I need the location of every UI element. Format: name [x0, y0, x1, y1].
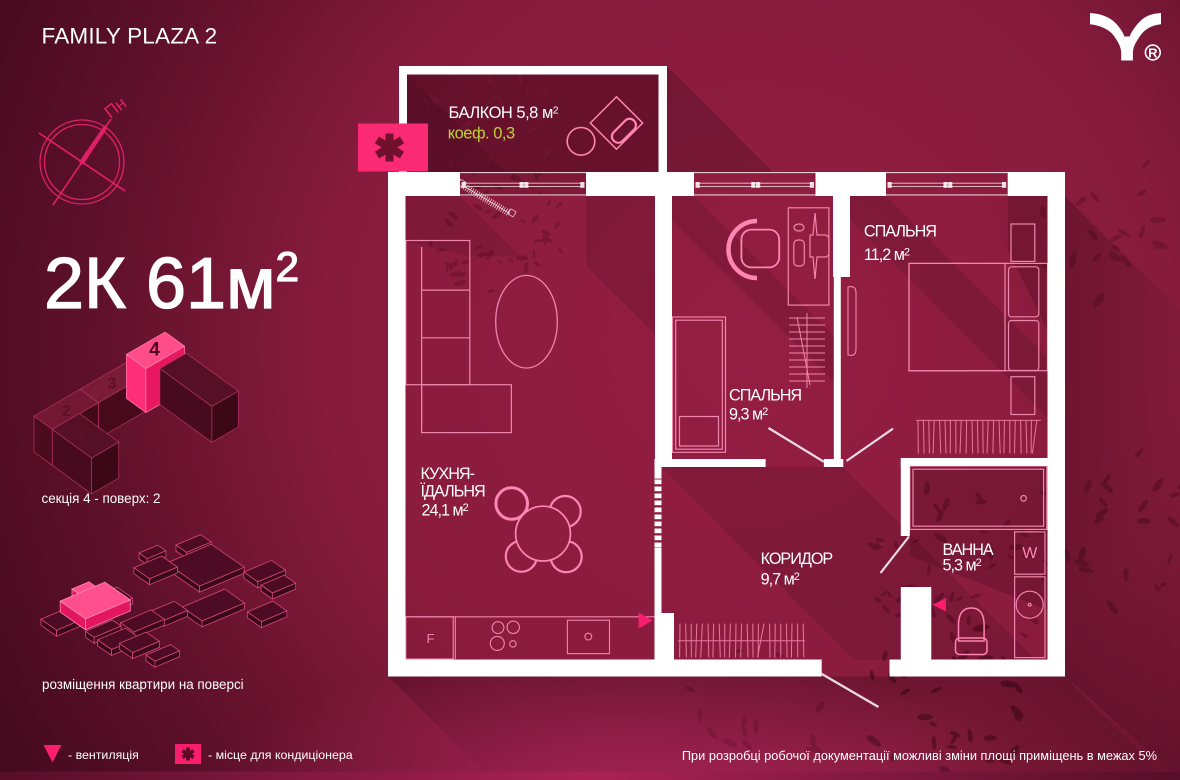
svg-text:W: W: [1022, 545, 1038, 562]
svg-text:При розробці робочої документа: При розробці робочої документації можлив…: [682, 748, 1157, 763]
svg-text:- вентиляція: - вентиляція: [68, 748, 139, 762]
svg-text:R: R: [1148, 45, 1158, 60]
svg-text:11,2 м2: 11,2 м2: [864, 246, 910, 264]
svg-text:КУХНЯ-: КУХНЯ-: [421, 465, 475, 483]
svg-text:розміщення квартири на поверсі: розміщення квартири на поверсі: [42, 677, 244, 692]
svg-text:4: 4: [149, 340, 160, 361]
svg-text:БАЛКОН 5,8 м2: БАЛКОН 5,8 м2: [449, 104, 559, 122]
svg-text:F: F: [427, 631, 435, 646]
svg-text:FAMILY PLAZA 2: FAMILY PLAZA 2: [42, 24, 218, 49]
svg-text:2: 2: [62, 403, 71, 420]
svg-text:3: 3: [107, 375, 116, 392]
svg-text:24,1 м2: 24,1 м2: [422, 502, 469, 520]
svg-text:2К 61м2: 2К 61м2: [44, 243, 299, 324]
svg-text:коеф. 0,3: коеф. 0,3: [448, 125, 515, 143]
svg-text:КОРИДОР: КОРИДОР: [761, 550, 833, 568]
svg-text:5: 5: [181, 362, 189, 379]
svg-text:СПАЛЬНЯ: СПАЛЬНЯ: [729, 386, 801, 404]
svg-text:1: 1: [77, 426, 85, 443]
svg-text:- місце для кондиціонера: - місце для кондиціонера: [208, 748, 353, 762]
svg-text:СПАЛЬНЯ: СПАЛЬНЯ: [864, 223, 936, 241]
svg-text:ЇДАЛЬНЯ: ЇДАЛЬНЯ: [421, 483, 486, 501]
svg-text:секція 4 - поверх: 2: секція 4 - поверх: 2: [42, 491, 161, 506]
